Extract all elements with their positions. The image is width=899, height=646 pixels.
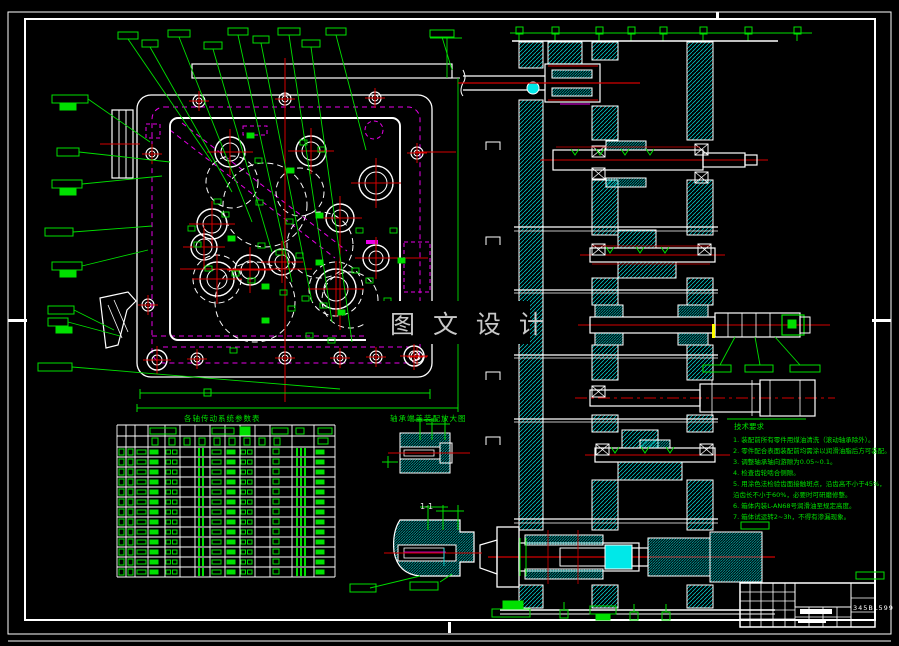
note-line-3: 3. 调整轴承轴向游隙为0.05~0.1。	[733, 457, 837, 466]
title-block-drawing-number: 345BL599	[853, 604, 894, 612]
note-line-5: 5. 用涂色法检验齿面接触斑点，沿齿高不小于45%，	[733, 479, 886, 488]
note-line-1: 1. 装配前所有零件用煤油清洗（滚动轴承除外）。	[733, 435, 875, 444]
bom-table-title: 各轴传动系统参数表	[184, 413, 261, 423]
note-line-5b: 沿齿长不小于60%，必要时可研磨修整。	[733, 490, 851, 499]
watermark-text: 图 文 设 计	[390, 310, 549, 339]
detail-view-title: 轴承端盖装配放大图	[390, 413, 467, 423]
notes-header: 技术要求	[734, 421, 764, 431]
note-line-6: 6. 箱体内装L-AN68号润滑油至规定高度。	[733, 501, 856, 510]
note-line-7: 7. 箱体试运转2~3h，不得有渗漏现象。	[733, 512, 850, 521]
section-label-1-1: 1-1	[420, 502, 433, 511]
note-line-4: 4. 检查齿轮啮合侧隙。	[733, 468, 800, 477]
note-line-2: 2. 零件配合表面装配前均需涂以润滑油脂后方可装配。	[733, 446, 891, 455]
cad-drawing-sheet: 图 文 设 计 各轴传动系统参数表 轴承端盖装配放大图 1-1 技术要求 1. …	[0, 0, 899, 646]
cad-canvas: 图 文 设 计 各轴传动系统参数表 轴承端盖装配放大图 1-1 技术要求 1. …	[0, 0, 899, 646]
